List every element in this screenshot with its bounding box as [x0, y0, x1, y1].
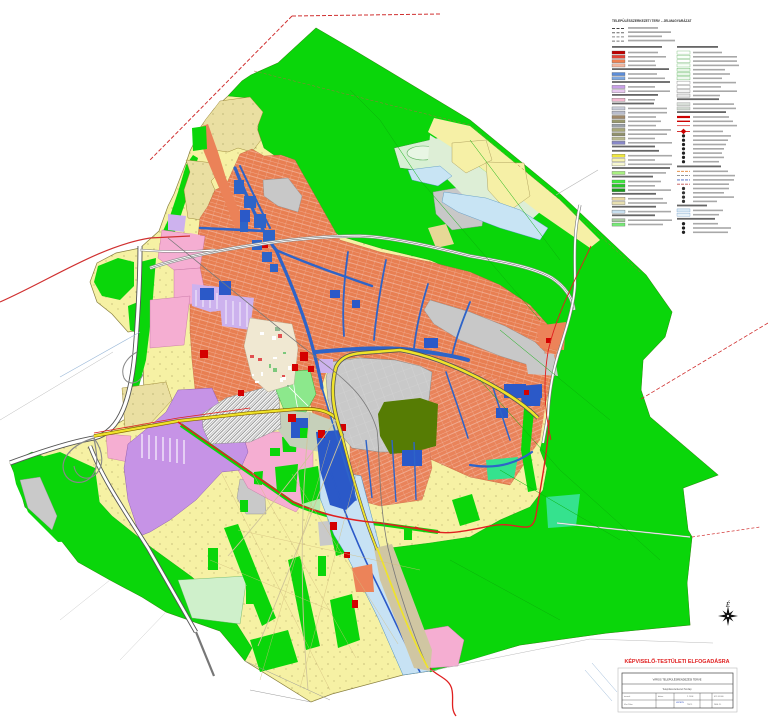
svg-text:M 1:16 000: M 1:16 000 — [714, 696, 723, 698]
svg-text:VÁTERV: VÁTERV — [676, 701, 685, 704]
svg-text:Településszerkezeti Tervlap: Településszerkezeti Tervlap — [662, 688, 692, 691]
svg-text:TSZ-1: TSZ-1 — [687, 704, 692, 706]
svg-text:KÉPVISELŐ-TESTÜLETI ELFOGADÁSR: KÉPVISELŐ-TESTÜLETI ELFOGADÁSRA — [624, 657, 729, 665]
svg-text:tervező: tervező — [624, 695, 630, 698]
svg-text:dátum: dátum — [658, 695, 664, 698]
svg-text:TELEPÜLÉSSZERKEZETI TERV – JEL: TELEPÜLÉSSZERKEZETI TERV – JELMAGYARÁZAT — [612, 18, 692, 23]
svg-text:Váci Péter: Váci Péter — [624, 703, 633, 706]
svg-text:2004.11.: 2004.11. — [714, 704, 722, 706]
svg-text:2. 2004: 2. 2004 — [687, 696, 693, 698]
